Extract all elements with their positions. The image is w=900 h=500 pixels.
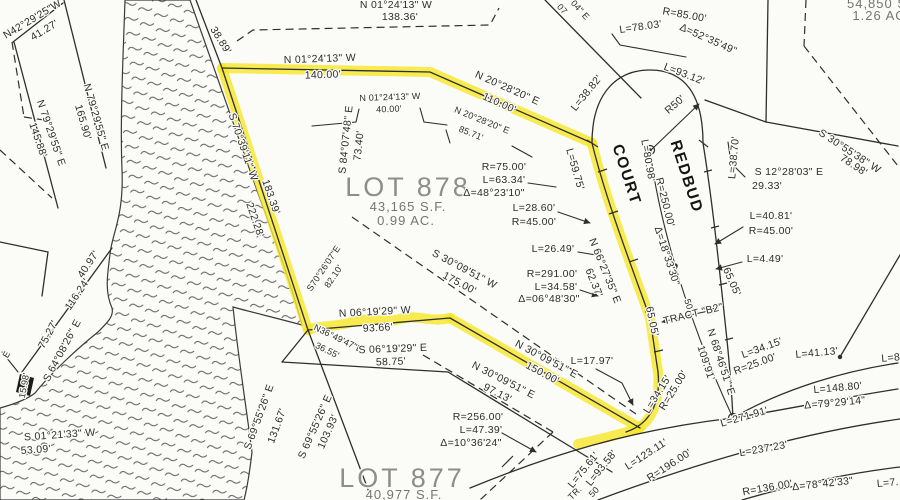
survey-label: 40.00': [376, 104, 402, 115]
survey-label: Δ=10°36'24": [440, 437, 501, 449]
survey-label: 138.36': [382, 11, 418, 23]
survey-label: R=256.00': [453, 411, 504, 423]
survey-label: L=40.81': [750, 210, 793, 222]
survey-label: N 01°24'13" W: [284, 52, 357, 67]
survey-label: 58.75': [376, 355, 406, 368]
survey-label: 93.66': [363, 321, 394, 335]
survey-label: R=75.00': [482, 161, 526, 173]
survey-label: R=45.00': [512, 216, 556, 228]
lot-878-acreage: 0.99 AC.: [377, 213, 435, 228]
survey-label: 29.33': [752, 180, 782, 192]
survey-label: 53.09': [20, 443, 51, 457]
survey-label: L=8: [881, 351, 900, 365]
survey-label: 1.26 AC: [852, 8, 900, 23]
survey-label: L=17.97': [571, 355, 614, 367]
survey-label: L=7.: [876, 476, 899, 490]
survey-label: L=26.49': [532, 243, 575, 255]
survey-label: Δ=06°48'30": [518, 293, 579, 305]
survey-label: L=34.58': [535, 281, 578, 293]
survey-label: L=63.34': [483, 174, 526, 186]
survey-label: L=4.49': [747, 253, 784, 265]
lot-878-title: LOT 878: [345, 172, 471, 202]
survey-label: L=47.39': [460, 424, 503, 436]
plat-drawing: N42°29'25"W41.27'N 79°29'55" E165.90'N 7…: [0, 0, 900, 500]
survey-label: R=291.00': [527, 268, 578, 280]
survey-label: S 12°28'03" E: [755, 166, 824, 178]
survey-label: N 01°24'13" W: [360, 0, 432, 11]
lot-878-area: 43,165 S.F.: [370, 199, 447, 214]
survey-label: 140.00': [305, 68, 342, 81]
survey-label: R=45.00': [749, 225, 793, 237]
plat-map: N42°29'25"W41.27'N 79°29'55" E165.90'N 7…: [0, 0, 900, 500]
survey-label: S 06°19'29" E: [358, 342, 427, 356]
survey-label: L=28.60': [513, 202, 556, 214]
lot-877-area: 40,977 S.F.: [366, 487, 443, 500]
survey-label: Δ=48°23'10": [463, 187, 524, 199]
